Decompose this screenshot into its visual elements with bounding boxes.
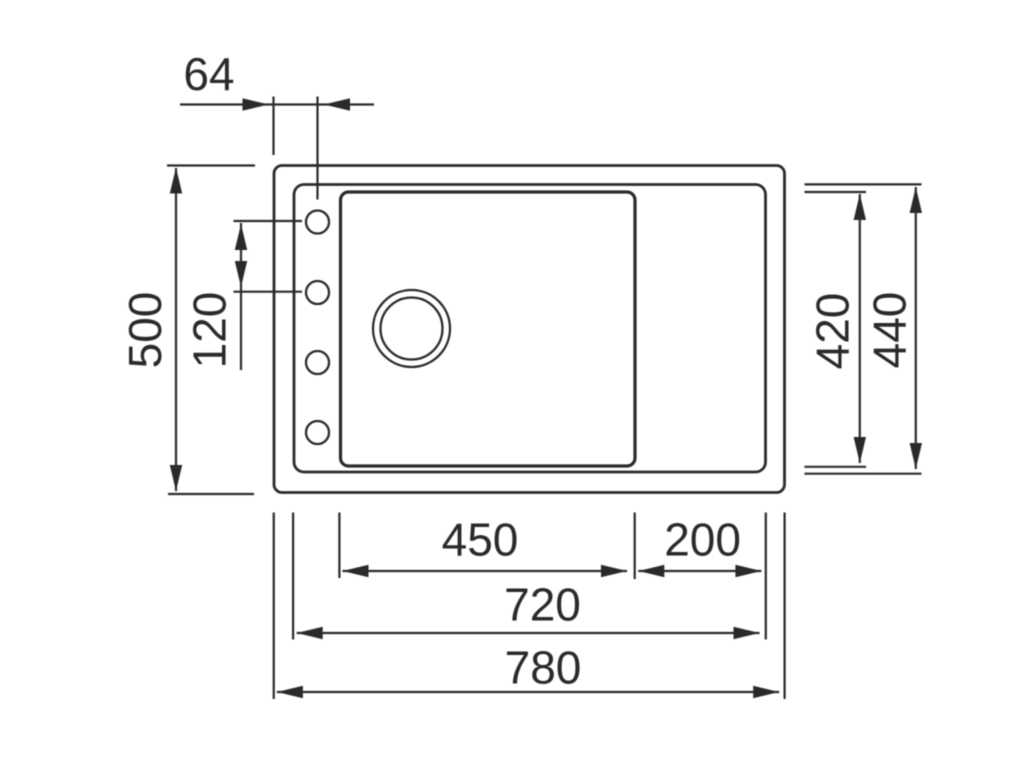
svg-text:500: 500 [119, 292, 171, 369]
svg-text:200: 200 [664, 513, 741, 565]
svg-text:64: 64 [183, 48, 234, 100]
svg-text:780: 780 [505, 641, 582, 693]
svg-text:420: 420 [806, 293, 858, 370]
svg-text:120: 120 [183, 292, 235, 369]
svg-text:720: 720 [504, 578, 581, 630]
svg-text:440: 440 [863, 292, 915, 369]
svg-text:450: 450 [442, 514, 519, 566]
